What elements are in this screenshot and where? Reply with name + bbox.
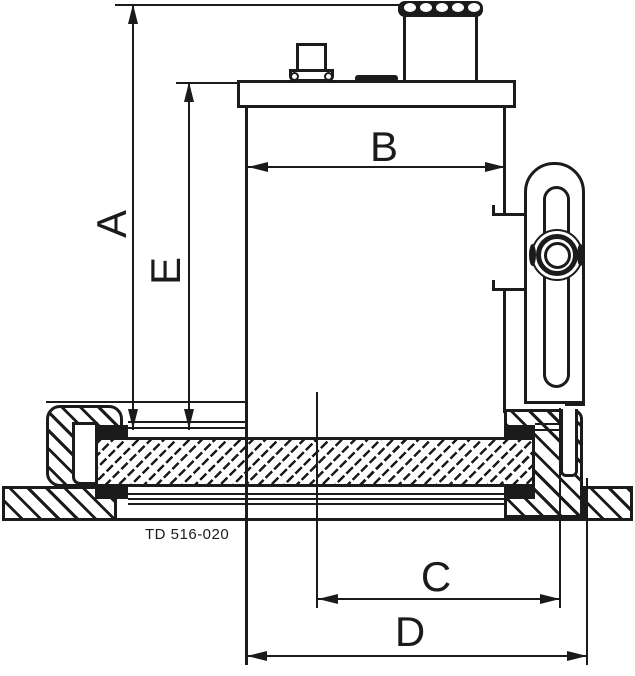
knurled-fitting-body [403,13,478,83]
bracket-slot [543,186,570,388]
bracket-connector-top-tick [492,205,495,216]
cap-seam-mark [355,75,398,82]
dim-c-arrow-right-icon [540,594,560,604]
knurl-dot [404,3,416,12]
dim-label-e: E [144,249,188,293]
dim-c-extension-right [559,408,561,608]
membrane-line [535,429,560,431]
dim-label-c: C [414,555,458,599]
bracket-connector-bottom [492,288,526,291]
cable-gland-cap [296,43,327,72]
dim-label-a: A [90,202,134,246]
dim-label-b: B [362,125,406,169]
dim-d-extension-right [586,478,588,665]
dim-a-arrow-down-icon [128,409,138,429]
dim-d-arrow-left-icon [247,651,267,661]
gland-nub-left [290,72,299,81]
dim-c-extension-left [316,392,318,608]
nut-side-mark-right [577,244,584,266]
technical-drawing-canvas: A E B C D TD 516-020 [0,0,635,676]
top-cap-plate [237,80,516,108]
dim-d-arrow-right-icon [567,651,587,661]
seal-top-left [95,425,128,438]
dim-e-arrow-down-icon [184,409,194,429]
membrane-line [535,423,560,425]
knurl-dot [436,3,448,12]
dim-a-arrow-up-icon [128,4,138,24]
bracket-connector-bottom-tick [492,280,495,291]
flange-ring-top-line-left [46,401,247,403]
dim-a-extension-line [115,4,400,6]
dim-b-arrow-right-icon [485,162,505,172]
dim-d-line [247,655,587,657]
bracket-connector-top [492,213,526,216]
gasket-disc [95,437,535,487]
knurl-dot [420,3,432,12]
tank-wall-right [583,486,633,521]
dim-label-d: D [388,610,432,654]
seal-bottom-right [504,486,535,499]
nut-bore [544,242,571,269]
body-right-edge-lower [503,289,506,413]
dim-c-arrow-left-icon [318,594,338,604]
seal-bottom-left [95,486,128,499]
dim-e-arrow-up-icon [184,82,194,102]
dim-b-arrow-left-icon [248,162,268,172]
drawing-number: TD 516-020 [145,526,229,543]
seal-top-right [504,425,535,438]
gland-nub-right [324,72,333,81]
body-left-edge-and-dim-d-extension [245,108,248,665]
clamp-channel-right [560,409,578,477]
nut-side-mark-left [529,244,536,266]
knurl-dot [452,3,464,12]
knurl-dot [468,3,480,12]
